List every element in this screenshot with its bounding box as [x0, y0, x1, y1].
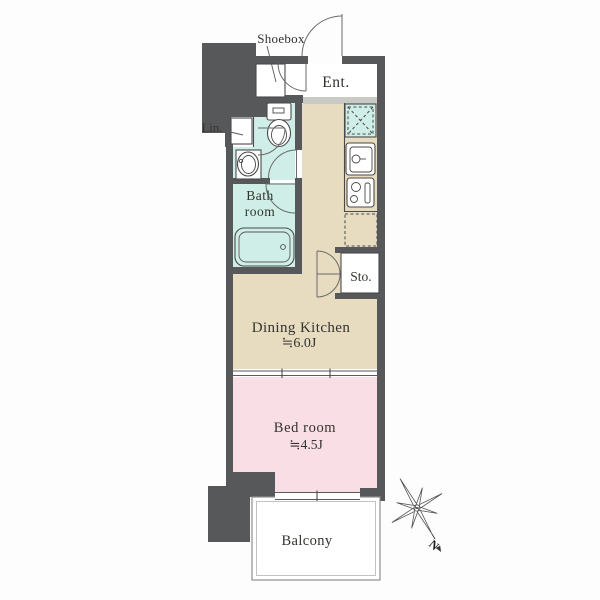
bathroom-label-line2: room	[245, 204, 276, 219]
entrance-step	[303, 97, 377, 104]
compass-center-dot	[416, 507, 418, 509]
bedroom-size: ≒4.5J	[289, 437, 322, 452]
sliding-door-partition	[233, 369, 377, 379]
wall-block-top-left	[202, 43, 256, 97]
wall-washroom-right-upper	[295, 103, 302, 150]
compass-rose: N	[392, 479, 442, 554]
dining-kitchen-size: ≒6.0J	[282, 336, 317, 351]
wall-left-main	[226, 133, 233, 475]
shoebox-label: Shoebox	[257, 31, 305, 46]
stove-icon	[347, 178, 374, 207]
wall-storage-bottom	[335, 293, 385, 299]
linen-label: Lin.	[202, 121, 222, 135]
wall-block-bottom-left-b	[208, 486, 250, 542]
washbasin-icon	[236, 150, 261, 179]
wall-washroom-right-lower	[295, 178, 302, 270]
floor-plan-canvas: N Shoebox Ent. Lin. Bath room Sto. Dinin…	[0, 0, 600, 600]
toilet-tank	[267, 103, 291, 120]
storage-label: Sto.	[350, 269, 371, 284]
wall-fill-above-linen	[225, 95, 268, 117]
toilet-bowl	[268, 120, 291, 147]
wall-storage-top	[335, 247, 385, 253]
toilet-icon	[267, 103, 291, 147]
entrance-label: Ent.	[322, 74, 349, 91]
linen-closet	[231, 118, 252, 144]
bathroom-label-line1: Bath	[246, 188, 274, 203]
kitchen-sink-icon	[346, 143, 375, 175]
washing-machine-pan	[345, 104, 376, 137]
balcony-label: Balcony	[281, 533, 332, 549]
wall-top-left-segment	[256, 56, 308, 64]
dining-kitchen-label: Dining Kitchen	[252, 320, 351, 336]
entrance-door-arc	[302, 14, 342, 56]
floor-plan-page: N Shoebox Ent. Lin. Bath room Sto. Dinin…	[0, 0, 600, 600]
bedroom-window	[275, 491, 360, 502]
shoebox-closet	[256, 64, 285, 97]
bedroom-label: Bed room	[274, 420, 337, 436]
wall-bath-bottom	[226, 267, 302, 274]
